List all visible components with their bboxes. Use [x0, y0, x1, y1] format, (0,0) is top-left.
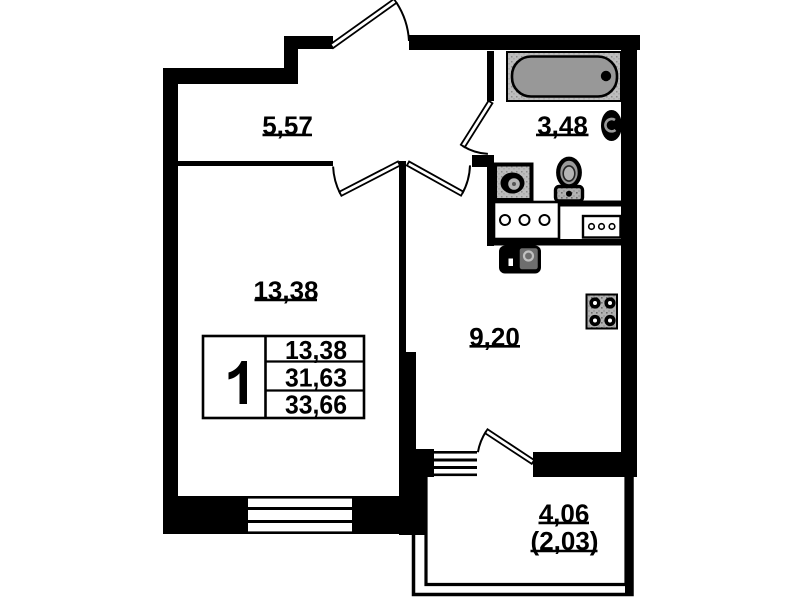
svg-text:33,66: 33,66	[285, 390, 347, 420]
svg-text:31,63: 31,63	[285, 363, 347, 393]
svg-text:13,38: 13,38	[285, 335, 347, 365]
